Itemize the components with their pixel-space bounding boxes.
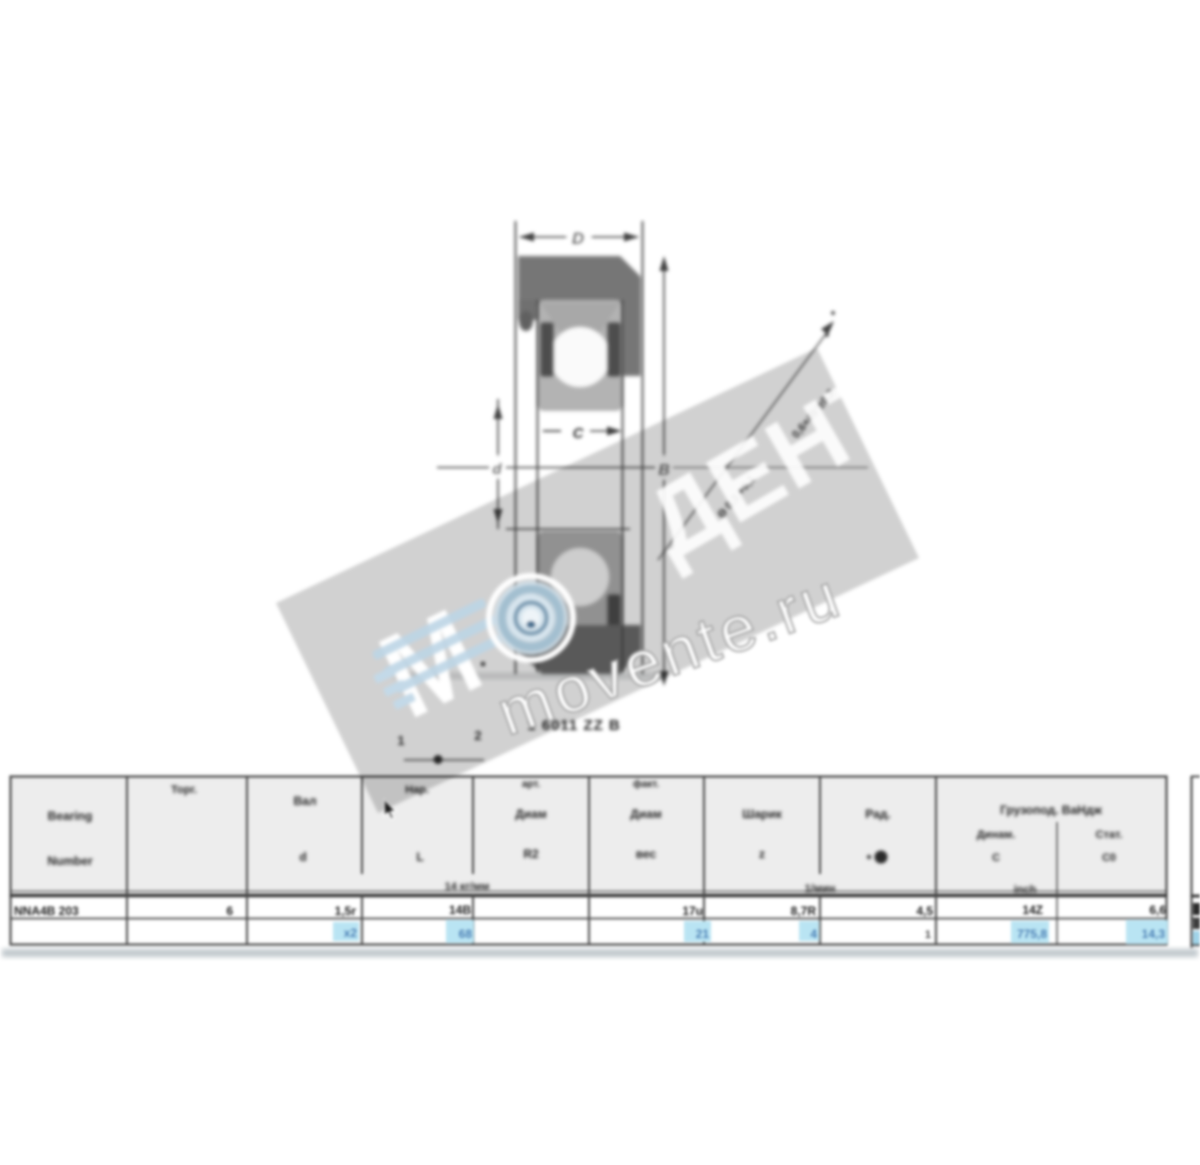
svg-text:68: 68: [459, 927, 473, 941]
svg-text:Рад.: Рад.: [865, 807, 890, 821]
svg-text:775,8: 775,8: [1017, 927, 1047, 941]
svg-text:D: D: [572, 229, 584, 248]
svg-text:1: 1: [925, 929, 931, 941]
svg-text:арт.: арт.: [522, 779, 541, 790]
svg-text:С0: С0: [1102, 852, 1116, 864]
svg-text:14В: 14В: [449, 903, 471, 917]
svg-text:inch: inch: [1014, 884, 1037, 896]
svg-text:d: d: [492, 461, 502, 478]
svg-text:Диам: Диам: [630, 807, 662, 821]
svg-text:Шарик: Шарик: [742, 807, 782, 821]
svg-text:L: L: [416, 850, 423, 864]
svg-text:C: C: [573, 425, 585, 442]
svg-text:Number: Number: [47, 854, 93, 868]
svg-text:Диам: Диам: [515, 807, 547, 821]
svg-text:Вал: Вал: [294, 794, 317, 808]
svg-text:R2: R2: [523, 847, 539, 861]
svg-text:6,6: 6,6: [1149, 903, 1166, 917]
svg-text:14Z: 14Z: [1022, 903, 1043, 917]
svg-text:8,7R: 8,7R: [791, 904, 817, 918]
svg-text:17u: 17u: [682, 904, 703, 918]
svg-text:Торг.: Торг.: [171, 784, 197, 796]
svg-text:С: С: [992, 852, 1000, 864]
svg-text:вес: вес: [636, 847, 657, 861]
svg-text:Стат.: Стат.: [1096, 829, 1123, 841]
svg-text:факт.: факт.: [633, 778, 659, 790]
svg-text:Грузопод. ВаНдж: Грузопод. ВаНдж: [1000, 803, 1102, 817]
svg-text:21: 21: [696, 927, 710, 941]
svg-text:Bearing: Bearing: [48, 809, 93, 823]
svg-text:6: 6: [226, 904, 233, 918]
svg-text:d: d: [299, 850, 306, 864]
svg-text:4,5: 4,5: [916, 904, 933, 918]
svg-text:Динам.: Динам.: [977, 829, 1016, 841]
svg-text:14 кг/мм: 14 кг/мм: [445, 881, 490, 893]
svg-text:1/мин: 1/мин: [805, 883, 836, 895]
svg-text:14,3: 14,3: [1142, 927, 1166, 941]
svg-text:4: 4: [810, 927, 817, 941]
svg-text:x2: x2: [344, 926, 358, 940]
svg-text:z: z: [759, 847, 765, 861]
svg-text:1,5r: 1,5r: [335, 904, 357, 918]
svg-text:NNA4B 203: NNA4B 203: [14, 904, 79, 918]
